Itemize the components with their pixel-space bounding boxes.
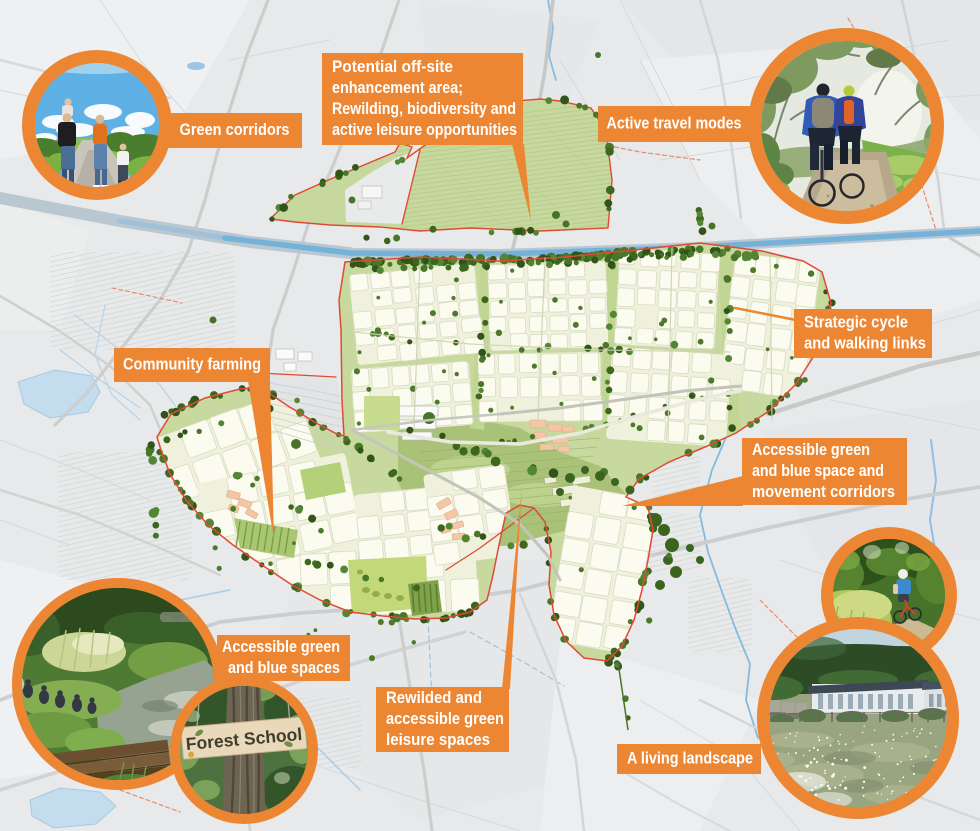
svg-text:Active travel modes: Active travel modes <box>607 114 742 133</box>
svg-text:Accessible green: Accessible green <box>222 637 340 656</box>
svg-text:leisure spaces: leisure spaces <box>386 730 490 749</box>
svg-text:Green corridors: Green corridors <box>180 120 290 139</box>
svg-text:Community farming: Community farming <box>123 355 261 374</box>
svg-text:and blue spaces: and blue spaces <box>228 658 340 677</box>
svg-text:A living landscape: A living landscape <box>627 749 753 768</box>
svg-text:Accessible green: Accessible green <box>752 440 870 459</box>
svg-text:Rewilding, biodiversity and: Rewilding, biodiversity and <box>332 99 516 118</box>
svg-text:and walking links: and walking links <box>804 334 926 353</box>
svg-text:movement corridors: movement corridors <box>752 482 895 501</box>
svg-text:Rewilded and: Rewilded and <box>386 688 482 707</box>
svg-text:Potential off-site: Potential off-site <box>332 57 453 76</box>
svg-text:accessible green: accessible green <box>386 709 504 728</box>
svg-text:and blue space and: and blue space and <box>752 461 884 480</box>
svg-text:active leisure opportunities: active leisure opportunities <box>332 120 517 139</box>
svg-text:enhancement area;: enhancement area; <box>332 78 463 97</box>
svg-text:Strategic cycle: Strategic cycle <box>804 313 908 332</box>
